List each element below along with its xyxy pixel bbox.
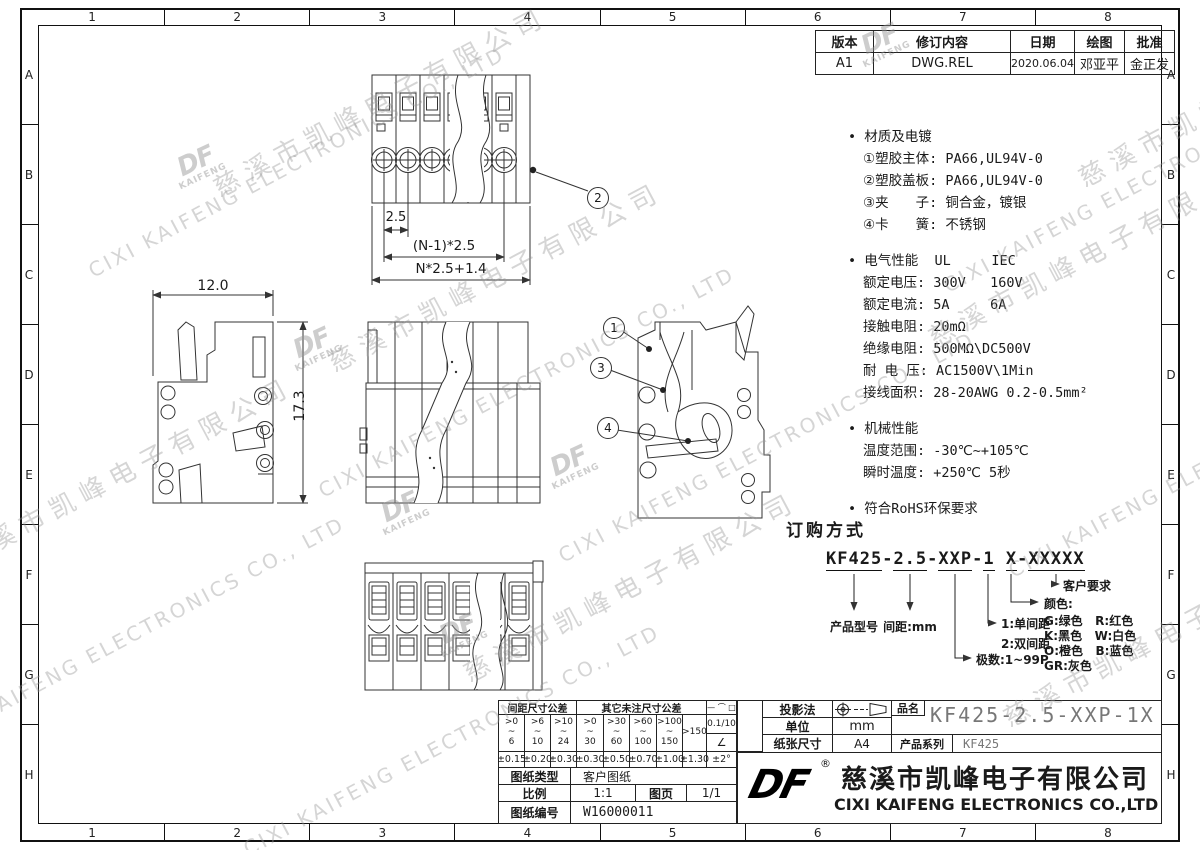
zone-row-label: B (20, 125, 38, 225)
zone-row-label: C (1162, 225, 1180, 325)
zone-row-label: B (1162, 125, 1180, 225)
revision-version: A1 (816, 53, 874, 75)
tol-angle-value: ±2° (706, 751, 737, 768)
tol-value: ±0.20 (524, 751, 551, 768)
projection-label: 投影法 (762, 700, 833, 718)
zone-col-label: 4 (455, 8, 600, 25)
part-number: KF425-2.5-XXP-1 X-XXXXX (826, 549, 1085, 569)
pn-color: X (1006, 549, 1017, 571)
dim-height: 17.3 (292, 384, 308, 428)
dim-width: 12.0 (183, 278, 243, 294)
spec-block: • 材质及电镀 ①塑胶主体: PA66,UL94V-0 ②塑胶盖板: PA66,… (848, 126, 1160, 520)
revision-header: 绘图 (1074, 31, 1124, 53)
zone-col-label: 7 (891, 8, 1036, 25)
tol-value: ±0.70 (629, 751, 657, 768)
tol-symbols: — ⌒ □ (706, 700, 737, 715)
doc-type-value: 客户图纸 (570, 767, 737, 785)
zone-strip-right: ABCDEFGH (1162, 25, 1180, 824)
zone-col-label: 5 (601, 8, 746, 25)
tol-value: ±1.30 (682, 751, 707, 768)
registered-mark: ® (820, 757, 831, 770)
paper-size-value: A4 (832, 734, 892, 753)
tol-range: >10 ~ 24 (550, 714, 577, 752)
scale-value: 1:1 (570, 784, 636, 802)
tol-value: ±0.30 (550, 751, 577, 768)
tol-value: ±0.30 (576, 751, 604, 768)
tol-range: >30 ~ 60 (603, 714, 630, 752)
zone-row-label: E (1162, 425, 1180, 525)
dim-overall: N*2.5+1.4 (400, 261, 502, 277)
zone-row-label: C (20, 225, 38, 325)
ordering-title: 订购方式 (786, 516, 866, 541)
revision-header: 版本 (816, 31, 874, 53)
tol-pitch-header: 间距尺寸公差 (498, 700, 577, 715)
sheet-value: 1/1 (686, 784, 737, 802)
revision-header: 批准 (1124, 31, 1174, 53)
zone-col-label: 1 (20, 8, 165, 25)
pn-sep (995, 549, 1006, 569)
tol-range: >6 ~ 10 (524, 714, 551, 752)
projection-symbol-cell (832, 700, 892, 718)
unit-value: mm (832, 717, 892, 735)
pn-customer: XXXXX (1028, 549, 1084, 571)
part-name-label: 品名 (891, 700, 925, 716)
company-logo: DF (745, 765, 812, 805)
zone-col-label: 6 (746, 8, 891, 25)
mechanical-title: • 机械性能 (848, 418, 1160, 440)
pn-sep: - (972, 549, 983, 569)
tol-range: >100 ~ 150 (656, 714, 683, 752)
pn-sep: - (1017, 549, 1028, 569)
revision-date: 2020.06.04 (1011, 53, 1075, 75)
ordering-label-model: 产品型号 (826, 618, 882, 635)
electrical-line: 额定电流: 5A 6A (848, 294, 1160, 316)
company-block: DF ® 慈溪市凯峰电子有限公司 CIXI KAIFENG ELECTRONIC… (737, 752, 1162, 824)
scale-label: 比例 (498, 784, 571, 802)
zone-row-label: E (20, 425, 38, 525)
drawing-number-label: 图纸编号 (498, 801, 571, 824)
tol-value: ±0.50 (603, 751, 630, 768)
electrical-title: • 电气性能 UL IEC (848, 250, 1160, 272)
material-line: ③夹 子: 铜合金，镀银 (848, 192, 1160, 214)
zone-col-label: 8 (1036, 824, 1180, 842)
zone-col-label: 4 (455, 824, 600, 842)
pn-sep: - (882, 549, 893, 569)
tol-range: >0 ~ 6 (498, 714, 525, 752)
zone-col-label: 1 (20, 824, 165, 842)
zone-row-label: G (20, 625, 38, 725)
pn-spacing: 1 (983, 549, 994, 571)
zone-row-label: D (1162, 325, 1180, 425)
zone-col-label: 5 (601, 824, 746, 842)
pn-sep: - (927, 549, 938, 569)
balloon-2: 2 (587, 187, 609, 209)
rohs-line: • 符合RoHS环保要求 (848, 498, 1160, 520)
first-angle-projection-icon (834, 702, 890, 717)
tol-value: ±0.15 (498, 751, 525, 768)
ordering-color-line: GR:灰色 (1044, 657, 1092, 674)
electrical-line: 绝缘电阻: 500MΩ\DC500V (848, 338, 1160, 360)
material-line: ①塑胶主体: PA66,UL94V-0 (848, 148, 1160, 170)
unit-label: 单位 (762, 717, 833, 735)
drawing-sheet: 12345678 12345678 ABCDEFGH ABCDEFGH 慈溪市凯… (0, 0, 1200, 850)
material-line: ④卡 簧: 不锈钢 (848, 214, 1160, 236)
sheet-label: 图页 (635, 784, 687, 802)
zone-row-label: A (20, 25, 38, 125)
electrical-line: 额定电压: 300V 160V (848, 272, 1160, 294)
doc-type-label: 图纸类型 (498, 767, 571, 785)
spacer-cell (737, 700, 763, 752)
revision-header: 日期 (1011, 31, 1075, 53)
zone-col-label: 3 (310, 8, 455, 25)
zone-strip-top: 12345678 (20, 8, 1180, 25)
ordering-label-double: 2:双间距 (1001, 635, 1050, 652)
balloon-1: 1 (603, 317, 625, 339)
zone-row-label: G (1162, 625, 1180, 725)
tol-range: >150 (682, 714, 707, 752)
zone-col-label: 7 (891, 824, 1036, 842)
pn-pitch: 2.5 (893, 549, 927, 571)
zone-col-label: 6 (746, 824, 891, 842)
company-name-en: CIXI KAIFENG ELECTRONICS CO.,LTD (834, 795, 1156, 814)
revision-content: DWG.REL (874, 53, 1011, 75)
zone-col-label: 2 (165, 8, 310, 25)
balloon-4: 4 (597, 417, 619, 439)
tol-flatness: 0.1/10 (706, 714, 737, 734)
dim-pitch: 2.5 (380, 210, 412, 225)
revision-approved-by: 金正发 (1124, 53, 1174, 75)
tol-range: >60 ~ 100 (629, 714, 657, 752)
drawing-number-value: W16000011 (570, 801, 737, 824)
paper-size-label: 纸张尺寸 (762, 734, 833, 753)
balloon-3: 3 (590, 357, 612, 379)
tol-value: ±1.00 (656, 751, 683, 768)
zone-col-label: 8 (1036, 8, 1180, 25)
zone-row-label: D (20, 325, 38, 425)
series-label: 产品系列 (891, 734, 953, 753)
zone-strip-bottom: 12345678 (20, 824, 1180, 842)
tol-angle-symbol: ∠ (706, 733, 737, 752)
zone-col-label: 2 (165, 824, 310, 842)
mechanical-line: 温度范围: -30℃~+105℃ (848, 440, 1160, 462)
revision-table: 版本 修订内容 日期 绘图 批准 A1 DWG.REL 2020.06.04 邓… (815, 30, 1175, 75)
dim-n-pitch: (N-1)*2.5 (394, 238, 494, 254)
zone-row-label: H (20, 725, 38, 824)
pn-poles: XXP (938, 549, 972, 571)
mechanical-line: 瞬时温度: +250℃ 5秒 (848, 462, 1160, 484)
ordering-label-color: 颜色: (1044, 595, 1073, 612)
revision-header: 修订内容 (874, 31, 1011, 53)
series-value: KF425 (952, 734, 1162, 753)
ordering-label-single: 1:单间距 (1001, 615, 1050, 632)
electrical-line: 耐 电 压: AC1500V\1Min (848, 360, 1160, 382)
zone-col-label: 3 (310, 824, 455, 842)
pn-model: KF425 (826, 549, 882, 571)
ordering-label-customer: 客户要求 (1063, 577, 1111, 594)
ordering-label-poles: 极数:1~99P (976, 651, 1049, 668)
revision-drawn-by: 邓亚平 (1074, 53, 1124, 75)
material-title: • 材质及电镀 (848, 126, 1160, 148)
zone-row-label: H (1162, 725, 1180, 824)
material-line: ②塑胶盖板: PA66,UL94V-0 (848, 170, 1160, 192)
company-name-cn: 慈溪市凯峰电子有限公司 (834, 759, 1156, 796)
zone-row-label: F (20, 525, 38, 625)
tol-other-header: 其它未注尺寸公差 (576, 700, 707, 715)
electrical-line: 接触电阻: 20mΩ (848, 316, 1160, 338)
ordering-label-pitch: 间距:mm (882, 618, 938, 635)
zone-row-label: F (1162, 525, 1180, 625)
part-name-value: KF425-2.5-XXP-1X (930, 703, 1160, 727)
electrical-line: 接线面积: 28-20AWG 0.2-0.5mm² (848, 382, 1160, 404)
zone-strip-left: ABCDEFGH (20, 25, 38, 824)
tol-range: >0 ~ 30 (576, 714, 604, 752)
